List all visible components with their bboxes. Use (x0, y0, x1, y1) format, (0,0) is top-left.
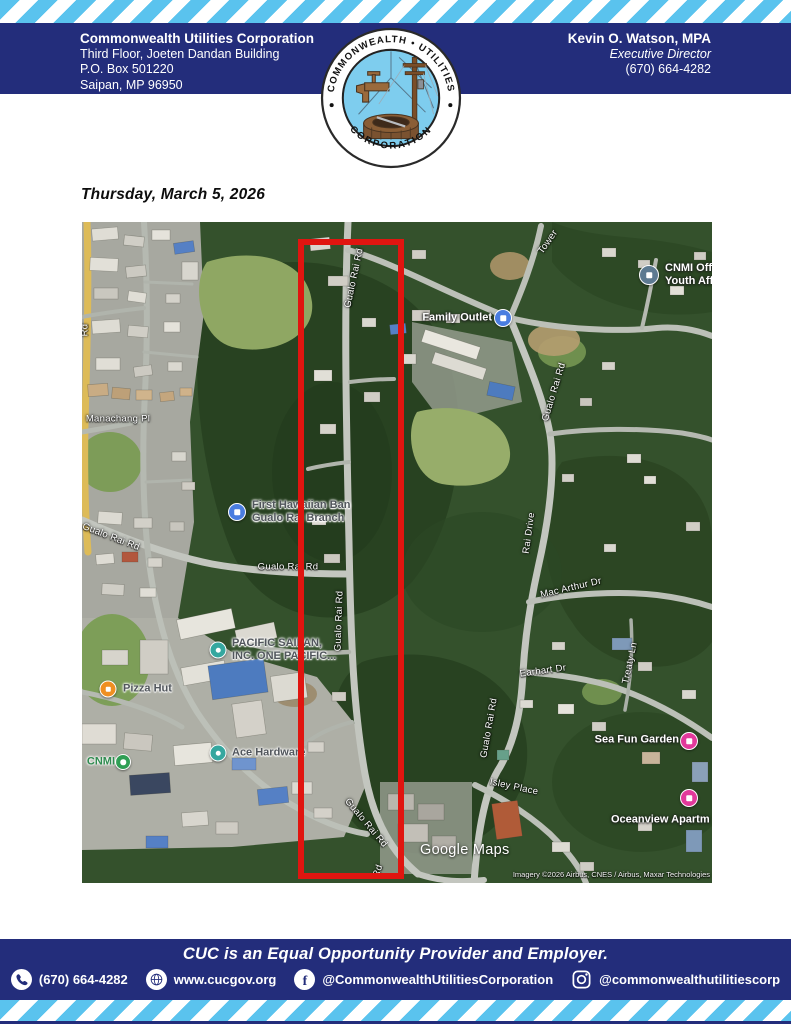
footer-instagram-text: @commonwealthutilitiescorp (599, 972, 780, 987)
road-label: Isley Place (489, 777, 539, 798)
org-address-line: Third Floor, Joeten Dandan Building (80, 47, 314, 63)
director-name: Kevin O. Watson, MPA (568, 31, 711, 47)
poi-label: Family Outlet (422, 312, 492, 325)
poi-label: Pizza Hut (123, 683, 172, 696)
road-label: Earhart Dr (519, 662, 567, 679)
poi-label: CNMI (87, 756, 115, 769)
road-label: Gualo Rai Rd (82, 521, 141, 553)
road-label: Rd (82, 324, 91, 337)
map-image: Gualo Rai RdTowerGualo Rai RdManachang P… (82, 222, 712, 883)
globe-icon (146, 969, 167, 990)
date-line: Thursday, March 5, 2026 (81, 186, 265, 204)
poi-marker-icon (115, 754, 131, 770)
footer-instagram: @commonwealthutilitiescorp (571, 969, 780, 990)
poi-marker-icon (210, 642, 227, 659)
footer-website: www.cucgov.org (146, 969, 277, 990)
poi-marker-icon (639, 265, 659, 285)
org-address-line: Saipan, MP 96950 (80, 78, 314, 94)
cuc-logo: COMMONWEALTH • UTILITIES CORPORATION (320, 27, 462, 169)
road-label: Rai Drive (521, 512, 538, 555)
svg-text:f: f (303, 973, 308, 988)
footer-phone-text: (670) 664-4282 (39, 972, 128, 987)
road-label: Manachang Pl (86, 414, 150, 425)
poi-marker-icon (228, 503, 246, 521)
instagram-icon (571, 969, 592, 990)
facebook-icon: f (294, 969, 315, 990)
footer-phone: (670) 664-4282 (11, 969, 128, 990)
footer-website-text: www.cucgov.org (174, 972, 277, 987)
road-label: Gualo Rai Rd (540, 361, 568, 422)
road-label: Gualo Rai Rd (478, 697, 499, 759)
bottom-stripe-band (0, 1000, 791, 1021)
phone-icon (11, 969, 32, 990)
footer-contact-row: (670) 664-4282 www.cucgov.org f @Commonw… (0, 969, 791, 990)
footer-facebook: f @CommonwealthUtilitiesCorporation (294, 969, 553, 990)
poi-label: CNMI OffiYouth Aff (665, 262, 712, 288)
org-address-line: P.O. Box 501220 (80, 62, 314, 78)
poi-marker-icon (680, 732, 698, 750)
poi-marker-icon (210, 745, 227, 762)
director-title: Executive Director (568, 47, 711, 63)
director-block: Kevin O. Watson, MPA Executive Director … (568, 31, 711, 78)
org-name: Commonwealth Utilities Corporation (80, 31, 314, 47)
highlight-rectangle (298, 239, 404, 879)
poi-marker-icon (100, 681, 117, 698)
poi-label: Ace Hardware (232, 747, 305, 760)
org-address-block: Commonwealth Utilities Corporation Third… (80, 31, 314, 93)
top-stripe-band (0, 0, 791, 23)
footer-bar: CUC is an Equal Opportunity Provider and… (0, 939, 791, 1000)
road-label: Mac Arthur Dr (539, 576, 602, 601)
poi-label: Oceanview Apartm (611, 814, 710, 827)
google-maps-watermark: Google Maps (420, 842, 510, 858)
map-attribution: Imagery ©2026 Airbus, CNES / Airbus, Max… (410, 870, 710, 879)
logo-well (364, 114, 419, 139)
poi-marker-icon (680, 789, 698, 807)
road-label: Tower (536, 228, 560, 256)
poi-marker-icon (494, 309, 512, 327)
flyer-page: Commonwealth Utilities Corporation Third… (0, 0, 791, 1024)
poi-label: Sea Fun Garden (595, 734, 679, 747)
cuc-logo-seal: COMMONWEALTH • UTILITIES CORPORATION (320, 27, 462, 169)
director-phone: (670) 664-4282 (568, 62, 711, 78)
footer-facebook-text: @CommonwealthUtilitiesCorporation (322, 972, 553, 987)
road-label: Treaty Ln (620, 641, 640, 685)
eeo-statement: CUC is an Equal Opportunity Provider and… (0, 945, 791, 964)
